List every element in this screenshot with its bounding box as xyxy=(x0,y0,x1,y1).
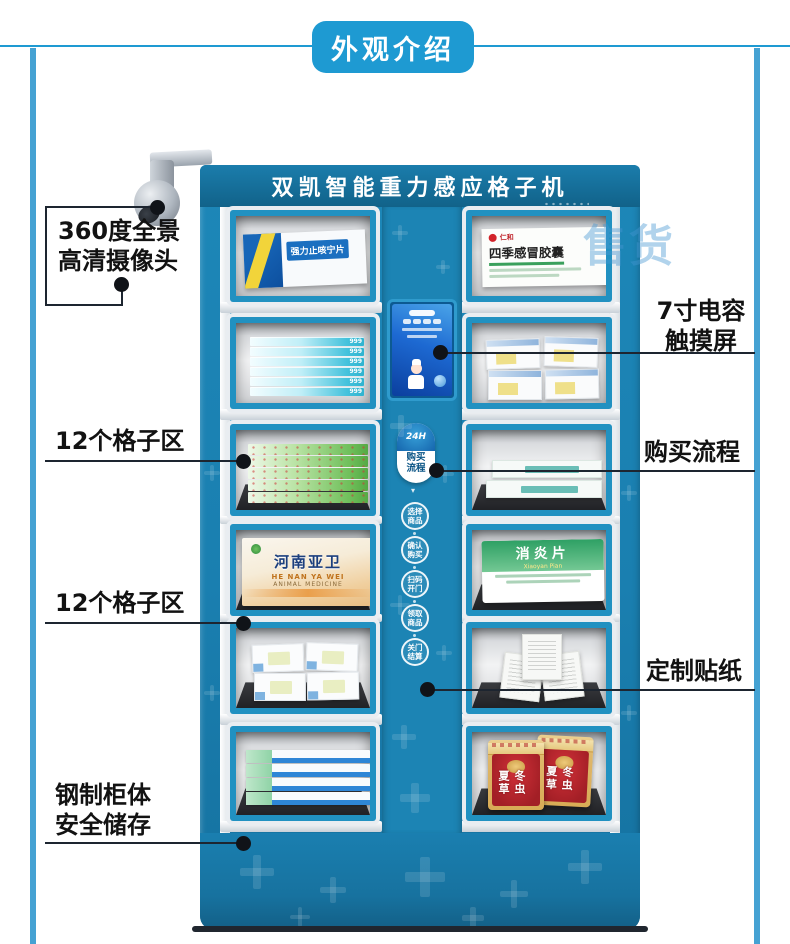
step-dot xyxy=(413,634,416,637)
product-name: 河南亚卫 xyxy=(242,551,370,572)
plus-decoration xyxy=(500,880,528,908)
product-box-layer: 999 xyxy=(250,347,364,356)
flow-step-close: 关门 结算 xyxy=(401,638,429,666)
brand-name: 仁和 xyxy=(500,233,514,243)
plus-decoration xyxy=(621,485,637,501)
nurse-head xyxy=(411,363,422,374)
compartment-cavity xyxy=(472,628,606,708)
screen-text-line xyxy=(402,328,442,331)
screen-chip-row xyxy=(392,319,452,324)
callout-line-sticker xyxy=(427,689,755,691)
product-box-layer xyxy=(246,764,370,777)
product-box-layer: 999 xyxy=(250,387,364,396)
compartment-r5-left xyxy=(230,622,376,714)
product-box-layer: 999 xyxy=(250,377,364,386)
product-stack: 999 999 999 999 999 999 xyxy=(250,337,364,397)
callout-label-line: 7寸电容 xyxy=(645,296,757,326)
callout-line-camera xyxy=(45,304,123,306)
compartment-cavity: 消炎片 Xiaoyan Pian xyxy=(472,530,606,610)
product-box xyxy=(254,673,306,701)
product-desc-line xyxy=(489,267,581,272)
shelf-separator xyxy=(220,516,382,524)
step-text: 商品 xyxy=(408,618,423,627)
brand-name: 999 xyxy=(349,377,362,386)
product-name: 冬虫夏草 xyxy=(541,765,575,803)
product-bag: 冬虫夏草 xyxy=(488,740,544,810)
product-box-layer xyxy=(246,792,370,805)
product-box-layer xyxy=(486,480,602,498)
shelf-separator xyxy=(458,409,620,420)
shelf-separator xyxy=(220,821,382,832)
compartment-r5-right xyxy=(466,622,612,714)
callout-label-line: 高清摄像头 xyxy=(58,246,180,276)
compartment-cavity xyxy=(472,323,606,403)
callout-dot-camera xyxy=(114,277,129,292)
callout-dot-grid-bottom xyxy=(236,616,251,631)
plus-decoration xyxy=(400,783,430,813)
section-title-banner: 外观介绍 xyxy=(312,21,474,73)
shelf-separator xyxy=(220,714,382,725)
product-box-layer: 999 xyxy=(250,367,364,376)
left-border-bar xyxy=(30,48,36,944)
brand-name: 999 xyxy=(349,387,362,396)
product-box-layer: 999 xyxy=(250,357,364,366)
nurse-illustration xyxy=(406,363,426,391)
screen-chip xyxy=(403,319,411,324)
step-text: 选择 xyxy=(408,507,423,516)
step-text: 购买 xyxy=(408,550,423,559)
product-desc-line xyxy=(489,274,559,278)
machine-floor-shadow xyxy=(192,926,648,932)
plus-decoration xyxy=(568,850,602,884)
plus-decoration xyxy=(405,857,445,897)
product-stack xyxy=(246,750,370,806)
callout-label-grid-bottom: 12个格子区 xyxy=(55,588,184,618)
brand-name: 999 xyxy=(349,337,362,346)
callout-label-grid-top: 12个格子区 xyxy=(55,426,184,456)
product-box: 强力止咳宁片 xyxy=(243,229,367,288)
callout-label-touchscreen: 7寸电容 触摸屏 xyxy=(645,296,757,356)
step-dot xyxy=(413,532,416,535)
product-box: 河南亚卫 HE NAN YA WEI ANIMAL MEDICINE xyxy=(242,538,370,606)
callout-line-grid-bottom xyxy=(45,622,243,624)
screen-chip xyxy=(423,319,431,324)
screen-chip xyxy=(413,319,421,324)
product-subtitle: Xiaoyan Pian xyxy=(482,562,604,571)
product-name: 冬虫夏草 xyxy=(495,770,527,806)
compartment-cavity: 冬虫夏草 冬虫夏草 xyxy=(472,732,606,815)
plus-decoration xyxy=(390,415,412,437)
shelf-separator xyxy=(458,516,620,524)
step-text: 确认 xyxy=(408,541,423,550)
callout-label-cabinet: 钢制柜体 安全储存 xyxy=(55,780,151,840)
product-box xyxy=(306,642,359,672)
callout-label-line: 触摸屏 xyxy=(645,326,757,356)
compartment-cavity xyxy=(236,430,370,510)
shelf-separator xyxy=(458,714,620,725)
callout-line-camera xyxy=(45,206,157,208)
plus-decoration xyxy=(240,855,274,889)
compartment-r3-left xyxy=(230,424,376,516)
product-subtitle: HE NAN YA WEI xyxy=(242,573,370,581)
product-box xyxy=(488,370,542,400)
product-box-layer xyxy=(248,492,368,503)
brand-name: 999 xyxy=(349,367,362,376)
callout-label-flow: 购买流程 xyxy=(644,437,740,467)
step-dot xyxy=(413,600,416,603)
compartment-r2-right xyxy=(466,317,612,409)
compartment-r6-right: 冬虫夏草 冬虫夏草 xyxy=(466,726,612,821)
plus-decoration xyxy=(621,705,637,721)
product-box-layer xyxy=(248,456,368,467)
product-box-layer xyxy=(248,468,368,479)
product-box-layer: 999 xyxy=(250,337,364,346)
callout-label-line: 钢制柜体 xyxy=(55,780,151,810)
nurse-body xyxy=(408,375,424,389)
brand-name: 999 xyxy=(349,347,362,356)
shelf-separator xyxy=(220,409,382,420)
section-title: 外观介绍 xyxy=(331,28,455,67)
plus-decoration xyxy=(204,465,220,481)
compartment-cavity: 河南亚卫 HE NAN YA WEI ANIMAL MEDICINE xyxy=(236,530,370,610)
screen-logo xyxy=(409,310,435,316)
step-text: 关门 xyxy=(408,643,423,652)
product-name: 消炎片 xyxy=(482,542,604,564)
product-box-layer xyxy=(248,444,368,455)
screen-chip xyxy=(433,319,441,324)
watermark-text: 售货 xyxy=(583,210,675,274)
callout-dot-cabinet xyxy=(236,836,251,851)
product-box xyxy=(252,643,305,673)
plus-decoration xyxy=(290,907,310,927)
compartment-r4-right: 消炎片 Xiaoyan Pian xyxy=(466,524,612,616)
step-dot xyxy=(413,566,416,569)
callout-line-cabinet xyxy=(45,842,243,844)
compartment-cavity xyxy=(236,628,370,708)
plus-decoration xyxy=(390,595,410,615)
flow-step-confirm: 确认 购买 xyxy=(401,536,429,564)
plus-decoration xyxy=(392,225,408,241)
product-name: 强力止咳宁片 xyxy=(286,239,349,261)
callout-line-flow xyxy=(436,470,755,472)
fine-print xyxy=(528,641,556,673)
plus-decoration xyxy=(436,645,452,661)
bag-red-panel: 冬虫夏草 xyxy=(538,749,589,803)
shelf-separator xyxy=(458,821,620,832)
product-box-layer xyxy=(248,480,368,491)
step-text: 开门 xyxy=(408,584,423,593)
plus-decoration xyxy=(436,260,450,274)
step-text: 商品 xyxy=(408,516,423,525)
machine-header-title: 双凯智能重力感应格子机 xyxy=(271,170,568,202)
callout-label-camera: 360度全景 高清摄像头 xyxy=(58,216,180,276)
shelf-separator xyxy=(458,302,620,313)
compartment-r1-left: 强力止咳宁片 xyxy=(230,210,376,302)
product-box xyxy=(545,369,600,400)
callout-dot-sticker xyxy=(420,682,435,697)
vending-machine: 双凯智能重力感应格子机 xyxy=(200,165,640,930)
callout-dot-camera xyxy=(150,200,165,215)
bag-red-panel: 冬虫夏草 xyxy=(492,754,540,806)
product-stack xyxy=(248,444,368,504)
callout-label-sticker: 定制贴纸 xyxy=(646,656,742,686)
product-box-layer xyxy=(246,750,370,763)
callout-line-camera xyxy=(45,206,47,306)
product-desc-line xyxy=(507,579,580,583)
product-box xyxy=(485,338,540,370)
step-text: 扫码 xyxy=(408,575,423,584)
callout-line-grid-top xyxy=(45,460,243,462)
chevron-down-icon: ▾ xyxy=(411,486,415,495)
product-desc-line xyxy=(495,573,590,578)
product-box-art: 消炎片 Xiaoyan Pian xyxy=(481,539,604,572)
callout-dot-grid-top xyxy=(236,454,251,469)
callout-dot-flow xyxy=(429,463,444,478)
screen-text-line xyxy=(407,335,437,338)
compartment-r4-left: 河南亚卫 HE NAN YA WEI ANIMAL MEDICINE xyxy=(230,524,376,616)
compartment-cavity: 强力止咳宁片 xyxy=(236,216,370,296)
product-box: 消炎片 Xiaoyan Pian xyxy=(481,539,604,603)
flow-step-select: 选择 商品 xyxy=(401,502,429,530)
plus-decoration xyxy=(204,685,220,701)
product-box-art xyxy=(243,233,283,289)
plus-decoration xyxy=(320,877,346,903)
compartment-r2-left: 999 999 999 999 999 999 xyxy=(230,317,376,409)
right-border-bar xyxy=(754,48,760,944)
product-intro-page: 外观介绍 售货 双凯智能重力感应格子机 xyxy=(0,0,790,944)
product-box xyxy=(522,634,562,680)
screen-round-button xyxy=(434,375,446,387)
compartment-cavity: 999 999 999 999 999 999 xyxy=(236,323,370,403)
shelf-separator xyxy=(220,302,382,313)
compartment-cavity xyxy=(236,732,370,815)
brand-logo xyxy=(489,234,497,242)
plus-decoration xyxy=(392,725,416,749)
step-text: 结算 xyxy=(408,652,423,661)
product-box-layer xyxy=(492,460,602,478)
callout-dot-touchscreen xyxy=(433,345,448,360)
product-subtitle: ANIMAL MEDICINE xyxy=(242,581,370,588)
product-name: 四季感冒胶囊 xyxy=(489,242,564,266)
product-box-layer xyxy=(246,778,370,791)
callout-label-line: 360度全景 xyxy=(58,216,180,246)
product-box xyxy=(307,672,359,701)
callout-label-line: 安全储存 xyxy=(55,810,151,840)
compartment-r6-left xyxy=(230,726,376,821)
brand-name: 999 xyxy=(349,357,362,366)
flow-step-scan: 扫码 开门 xyxy=(401,570,429,598)
product-stack xyxy=(486,460,602,500)
